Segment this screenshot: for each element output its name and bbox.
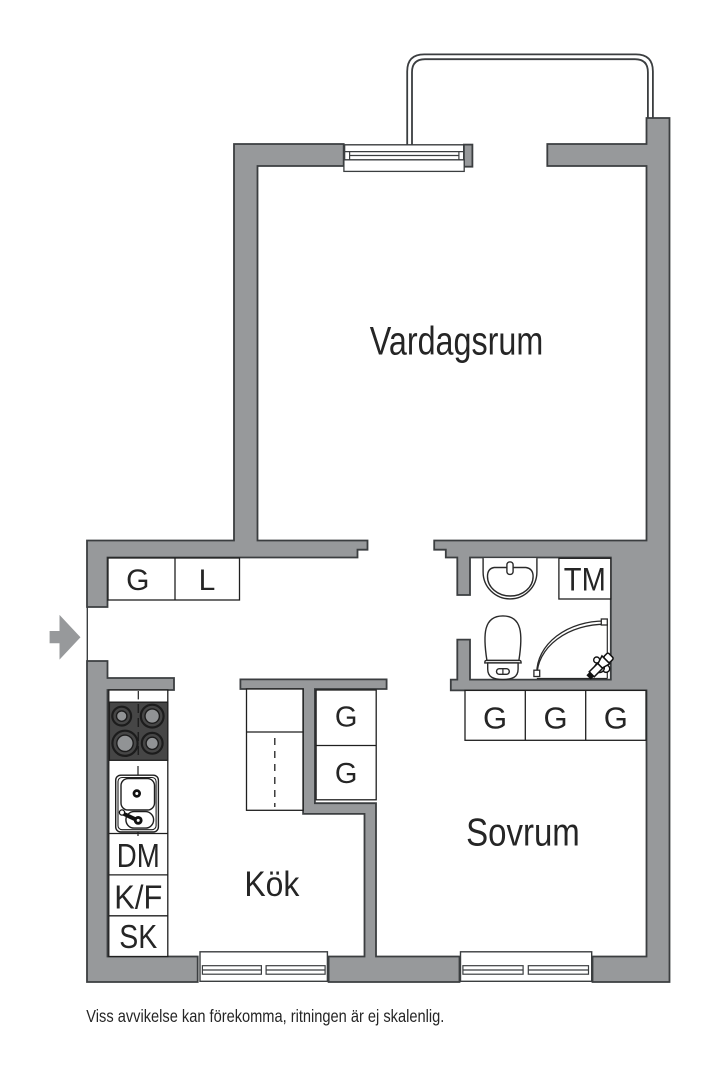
svg-text:Kök: Kök — [244, 865, 299, 904]
svg-text:G: G — [335, 702, 358, 734]
svg-text:G: G — [335, 758, 358, 790]
svg-text:G: G — [604, 700, 628, 735]
svg-text:Viss avvikelse kan förekomma,: Viss avvikelse kan förekomma, ritningen … — [86, 1006, 444, 1026]
svg-text:G: G — [543, 700, 567, 735]
svg-text:SK: SK — [119, 918, 157, 955]
svg-text:Sovrum: Sovrum — [466, 811, 580, 854]
svg-text:DM: DM — [117, 837, 160, 874]
svg-text:K/F: K/F — [114, 878, 162, 915]
svg-text:L: L — [199, 564, 216, 597]
svg-text:G: G — [483, 700, 507, 735]
svg-text:Vardagsrum: Vardagsrum — [370, 319, 544, 363]
svg-text:G: G — [126, 564, 149, 597]
svg-text:TM: TM — [564, 562, 606, 598]
